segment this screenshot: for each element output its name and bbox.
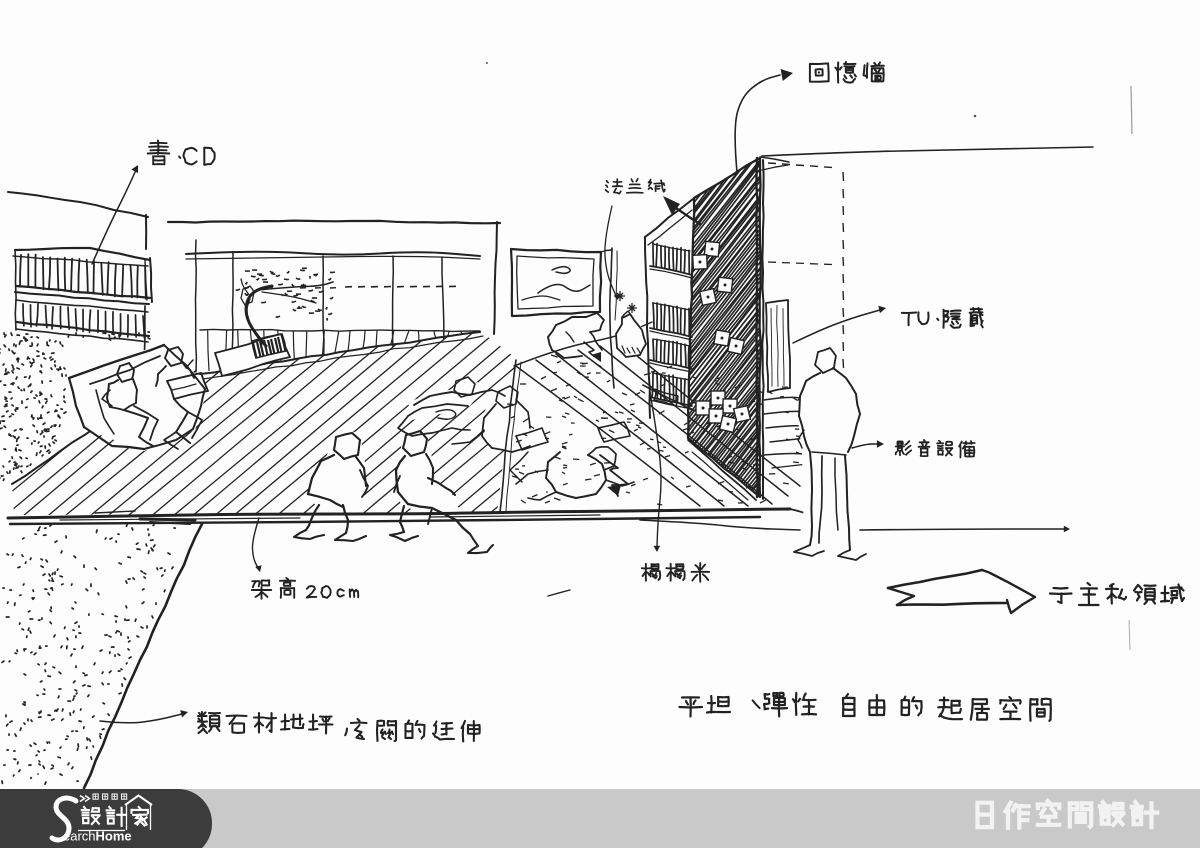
svg-text:earchHome: earchHome [63,829,132,844]
